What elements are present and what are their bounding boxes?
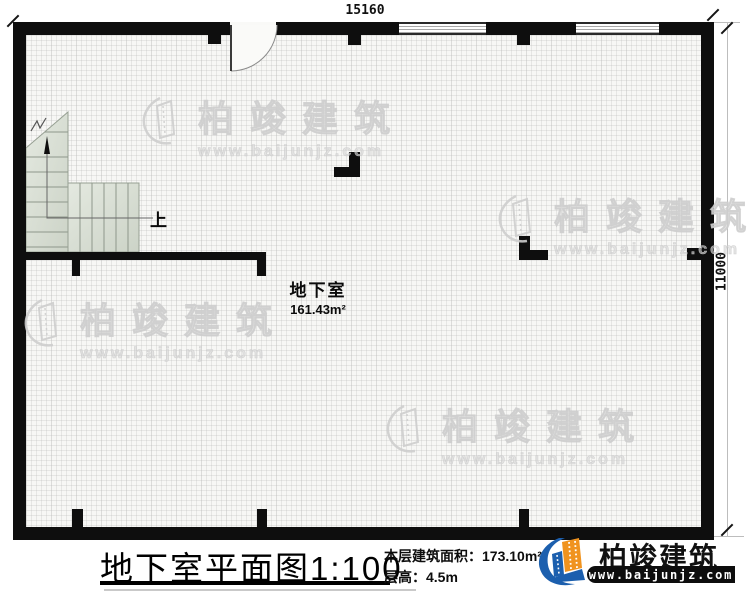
floor-height-line: 层高：4.5m — [384, 567, 542, 588]
window-2 — [576, 22, 659, 35]
column-bottom-1 — [72, 509, 83, 528]
wall-L2-horizontal — [519, 250, 548, 260]
door-swing-area — [231, 25, 277, 71]
area-line: 本层建筑面积：173.10m² — [384, 546, 542, 567]
area-label: 本层建筑面积： — [384, 548, 482, 564]
wall-L1-horizontal — [334, 167, 360, 177]
wall-right — [701, 22, 714, 540]
column-top-2 — [348, 22, 361, 45]
wall-interior-stair — [13, 252, 266, 260]
floor-height-label: 层高： — [384, 569, 426, 585]
brand-url: www.baijunjz.com — [589, 568, 733, 582]
column-bottom-2 — [257, 509, 267, 528]
title-underline — [100, 581, 390, 585]
brand-logo-icon — [534, 534, 598, 592]
entry-door — [226, 20, 286, 80]
room-name: 地下室 — [266, 276, 370, 301]
dimension-height-label: 11000 — [715, 242, 730, 302]
brand-url-bar: www.baijunjz.com — [587, 566, 735, 583]
stair-up-label: 上 — [150, 206, 167, 231]
floorplan-page: { "dims": { "width": "15160", "height": … — [0, 0, 750, 598]
wall-right-stub — [687, 248, 701, 260]
stair-break-line — [31, 118, 46, 131]
staircase — [13, 100, 173, 260]
floor-height-value: 4.5m — [426, 569, 458, 585]
wall-interior-stub — [257, 252, 266, 276]
dimension-tick-top-right — [707, 9, 720, 22]
column-interior — [72, 260, 80, 276]
column-bottom-3 — [519, 509, 529, 528]
area-value: 173.10m² — [482, 548, 542, 564]
wall-left — [13, 22, 26, 540]
column-top-1 — [208, 22, 221, 44]
title-shadow-line — [104, 589, 416, 591]
dimension-width-label: 15160 — [330, 3, 400, 18]
drawing-info: 本层建筑面积：173.10m² 层高：4.5m — [384, 546, 542, 588]
title-block: 地下室平面图1:100 本层建筑面积：173.10m² 层高：4.5m 柏竣建筑… — [0, 540, 750, 598]
room-area: 161.43m² — [266, 302, 370, 317]
room-label: 地下室 161.43m² — [266, 276, 370, 317]
wall-top-segment-3 — [486, 22, 576, 35]
column-top-3 — [517, 22, 530, 45]
wall-top-segment-1 — [13, 22, 230, 35]
window-1 — [399, 22, 486, 35]
wall-top-segment-2 — [276, 22, 399, 35]
